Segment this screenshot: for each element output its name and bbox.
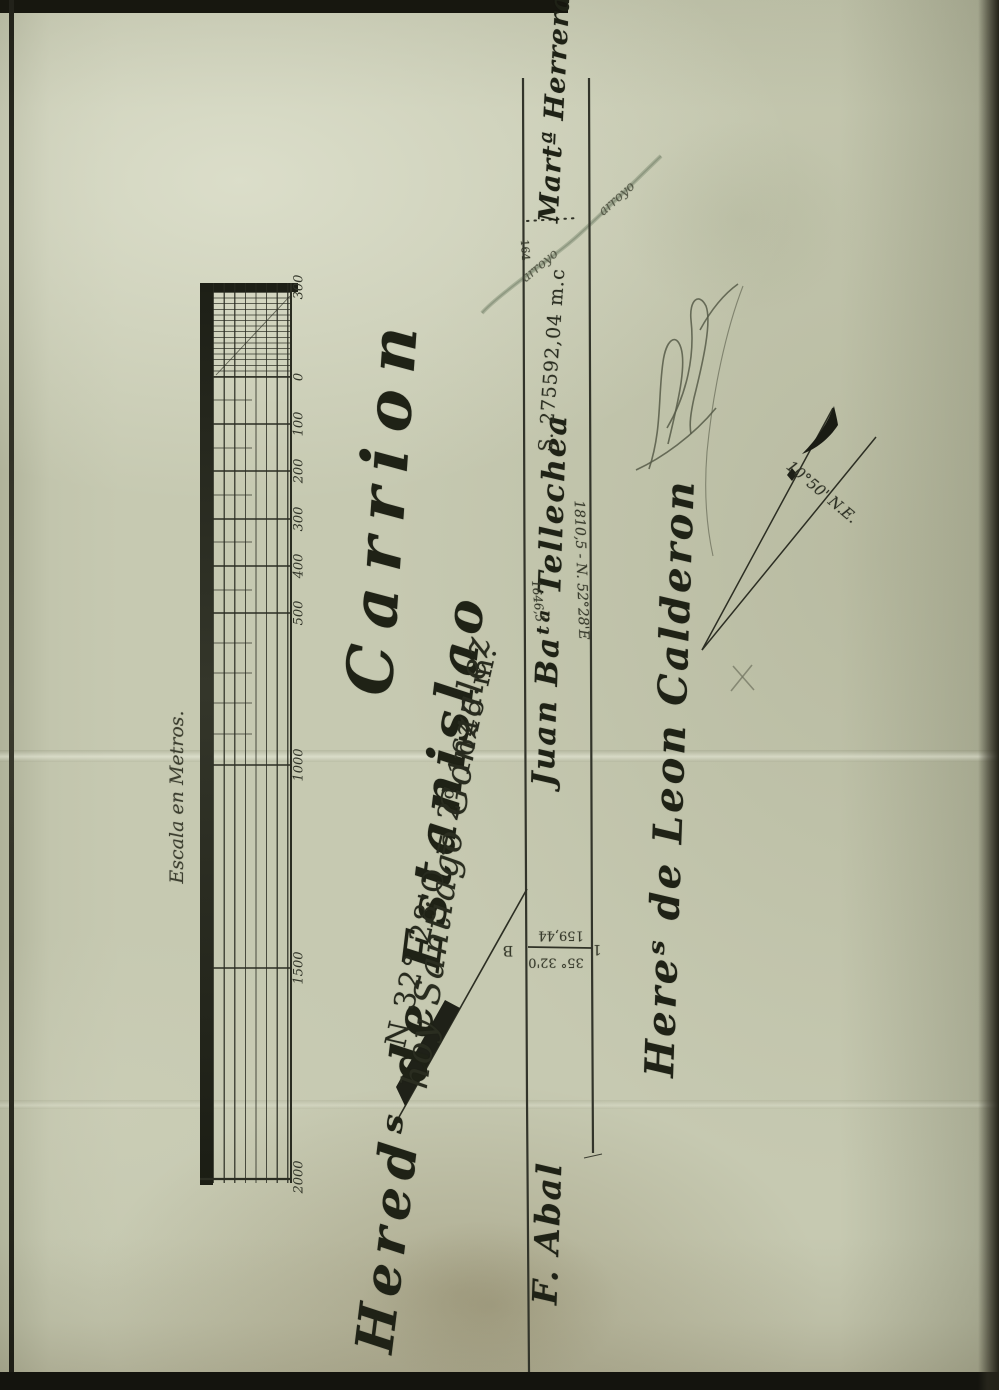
label-stream-upper: arroyo — [596, 179, 638, 219]
label-owner-calderon: Hereˢ de Leon Calderon — [636, 478, 704, 1079]
scale-tick-label: 1500 — [292, 951, 307, 984]
label-owner-herrera: Martª Herrera — [534, 0, 577, 223]
bottom-border-bar — [0, 1372, 999, 1390]
label-tie-distance: 159,44 — [538, 928, 584, 943]
scale-tick-label: 300 — [292, 507, 307, 532]
scale-bar-body — [213, 283, 292, 1183]
scale-tick-label: 300 — [292, 275, 307, 300]
label-declination-angle: 10°50' N.E. — [783, 457, 861, 527]
road-line-east-end-tick — [584, 1154, 602, 1158]
label-tie-point-1: 1 — [593, 941, 602, 957]
scale-tick-label: 500 — [292, 601, 307, 626]
label-offset-164: 164 — [518, 239, 532, 261]
label-owner-carrion: Carrion — [332, 308, 434, 698]
scale-caption: Escala en Metros. — [166, 710, 188, 883]
scale-tick-label: 0 — [292, 373, 307, 381]
label-tie-bearing: 35° 32'0 — [528, 955, 584, 970]
top-border-bar — [0, 0, 568, 13]
horizontal-fold-crease-2 — [0, 1100, 999, 1109]
scale-bar-subdivision-grid — [213, 292, 290, 377]
scale-tick-label: 1000 — [292, 748, 307, 781]
north-arrow-head — [802, 406, 838, 454]
stream-line — [482, 156, 661, 313]
stream-line-inner — [482, 156, 661, 313]
left-border-line — [9, 0, 14, 1390]
label-road-bearing-distance: 1810,5 - N. 52°28'E — [571, 500, 592, 640]
scale-tick-label: 2000 — [292, 1160, 307, 1193]
pencil-cross-mark — [731, 665, 754, 691]
scale-tick-label: 100 — [292, 412, 307, 437]
map-sheet: 300 0 100 200 300 400 500 1000 1500 2000… — [0, 0, 999, 1390]
label-tie-point-b: B — [503, 942, 513, 958]
boundary-tie-line — [528, 947, 592, 948]
scale-tick-label: 200 — [292, 459, 307, 484]
scale-bar-thick-edge — [200, 283, 213, 1185]
north-arrow-line-magnetic — [702, 408, 833, 650]
horizontal-fold-crease — [0, 750, 999, 762]
label-surveyor-abal: F. Abal — [526, 1161, 571, 1306]
right-edge-shadow — [978, 0, 999, 1390]
scale-tick-label: 400 — [292, 554, 307, 579]
survey-lines-layer — [0, 0, 999, 1390]
paper-stain — [620, 120, 860, 320]
